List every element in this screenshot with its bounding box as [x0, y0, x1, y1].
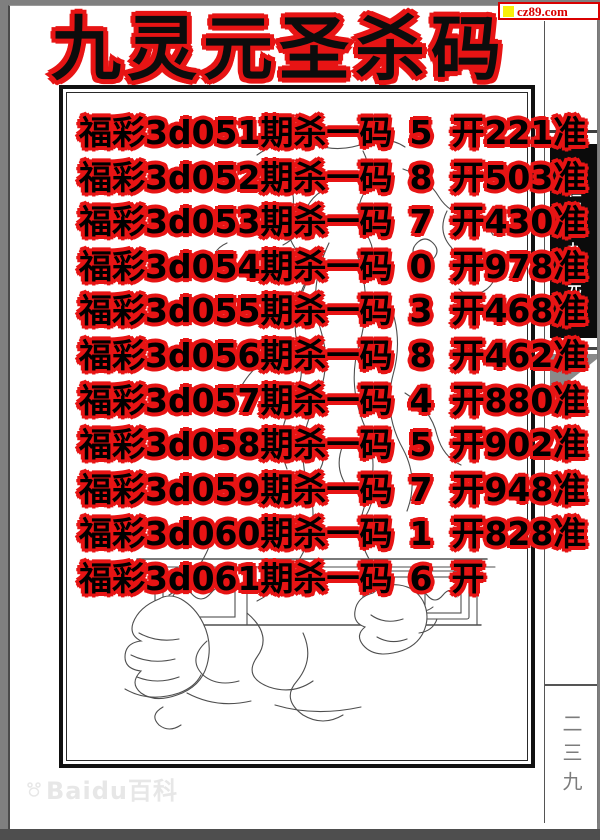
draw-result: 开: [451, 557, 484, 602]
draw-result: 开221准: [451, 111, 586, 156]
kill-row: 福彩3d060期杀一码1开828准: [79, 512, 586, 557]
kill-number: 3: [409, 289, 432, 334]
draw-result: 开880准: [451, 379, 586, 424]
yellow-square-icon: [503, 6, 514, 17]
kill-row: 福彩3d058期杀一码5开902准: [79, 423, 586, 468]
site-watermark-text: cz89.com: [517, 5, 568, 18]
baidu-paw-icon: [24, 779, 44, 799]
draw-result: 开948准: [451, 468, 586, 513]
kill-row: 福彩3d056期杀一码8开462准: [79, 334, 586, 379]
kill-row: 福彩3d057期杀一码4开880准: [79, 379, 586, 424]
scanned-page: cz89.com 九灵元圣杀码: [8, 5, 597, 830]
kill-row-label: 福彩3d054期杀一码: [79, 245, 392, 290]
page-number: 二三九: [561, 713, 581, 800]
kill-row: 福彩3d052期杀一码8开503准: [79, 156, 586, 201]
draw-result: 开978准: [451, 245, 586, 290]
kill-row-label: 福彩3d060期杀一码: [79, 512, 392, 557]
page-number-divider: [545, 684, 597, 686]
kill-row-label: 福彩3d056期杀一码: [79, 334, 392, 379]
kill-number: 7: [409, 200, 432, 245]
scan-bottom-edge: [0, 829, 600, 840]
kill-row-label: 福彩3d057期杀一码: [79, 379, 392, 424]
baidu-watermark-text: Baidu百科: [46, 771, 178, 806]
kill-row-label: 福彩3d058期杀一码: [79, 423, 392, 468]
draw-result: 开462准: [451, 334, 586, 379]
draw-result: 开503准: [451, 156, 586, 201]
kill-number: 6: [409, 557, 432, 602]
draw-result: 开468准: [451, 289, 586, 334]
content-frame: 福彩3d051期杀一码5开221准福彩3d052期杀一码8开503准福彩3d05…: [59, 85, 535, 768]
kill-row: 福彩3d059期杀一码7开948准: [79, 468, 586, 513]
kill-row-label: 福彩3d053期杀一码: [79, 200, 392, 245]
kill-number: 7: [409, 468, 432, 513]
kill-number: 0: [409, 245, 432, 290]
kill-row: 福彩3d061期杀一码6开: [79, 557, 586, 602]
kill-number: 8: [409, 156, 432, 201]
page-title: 九灵元圣杀码: [14, 12, 544, 86]
kill-row-label: 福彩3d051期杀一码: [79, 111, 392, 156]
kill-row: 福彩3d054期杀一码0开978准: [79, 245, 586, 290]
kill-number: 5: [409, 111, 432, 156]
kill-number: 5: [409, 423, 432, 468]
kill-number: 8: [409, 334, 432, 379]
kill-row-label: 福彩3d052期杀一码: [79, 156, 392, 201]
kill-row: 福彩3d051期杀一码5开221准: [79, 111, 586, 156]
kill-number: 1: [409, 512, 432, 557]
kill-row-label: 福彩3d055期杀一码: [79, 289, 392, 334]
draw-result: 开902准: [451, 423, 586, 468]
kill-list: 福彩3d051期杀一码5开221准福彩3d052期杀一码8开503准福彩3d05…: [79, 111, 586, 602]
kill-row: 福彩3d053期杀一码7开430准: [79, 200, 586, 245]
baidu-watermark: Baidu百科: [24, 771, 178, 806]
draw-result: 开828准: [451, 512, 586, 557]
site-watermark-badge: cz89.com: [498, 2, 600, 20]
kill-row-label: 福彩3d061期杀一码: [79, 557, 392, 602]
page-number-cell: 二三九: [545, 713, 597, 804]
draw-result: 开430准: [451, 200, 586, 245]
kill-number: 4: [409, 379, 432, 424]
kill-row-label: 福彩3d059期杀一码: [79, 468, 392, 513]
kill-row: 福彩3d055期杀一码3开468准: [79, 289, 586, 334]
